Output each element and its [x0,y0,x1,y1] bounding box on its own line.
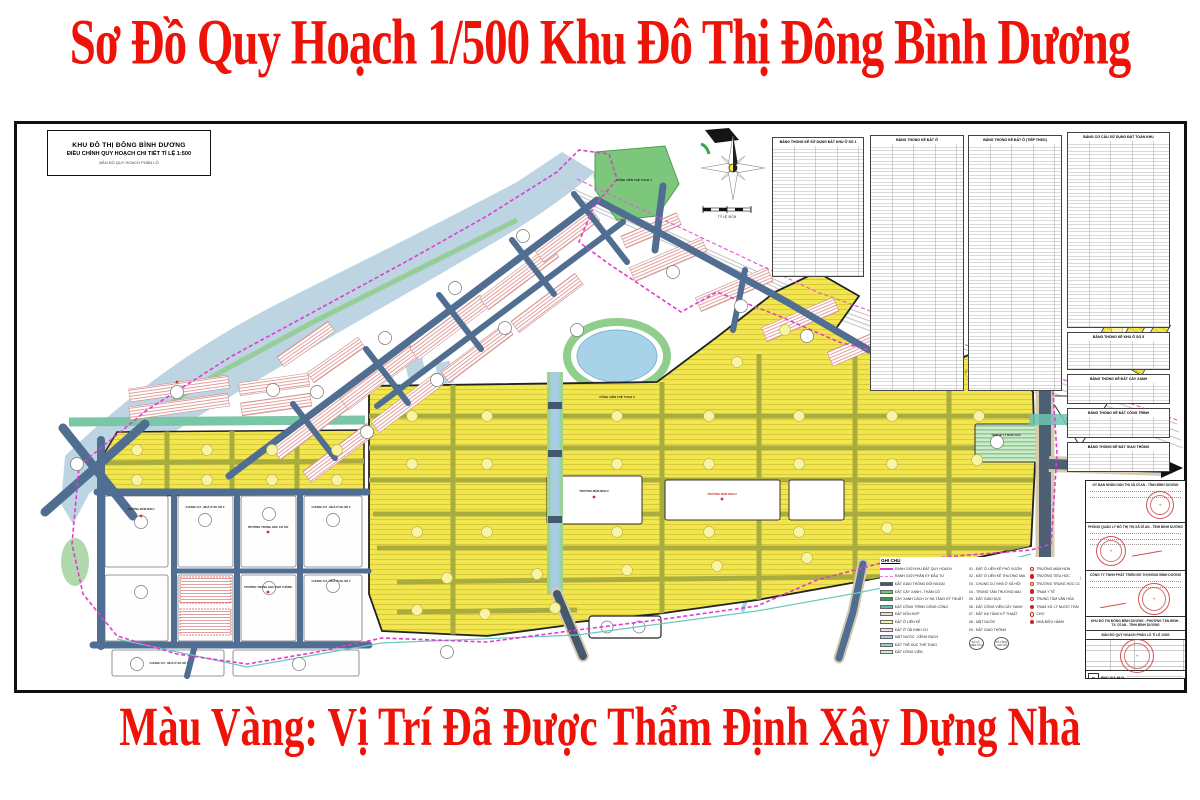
legend-note: 05 - ĐẤT GIÁO DỤC [969,595,1025,603]
red-stamp-icon: ✶ [1096,536,1126,566]
thpt-label: TRƯỜNG TRUNG HỌC PHỔ THÔNG [244,584,292,589]
apt3-label: CHUNG CƯ - NHÀ Ở XH SỐ 3 [312,504,351,509]
stat-table-rows [1068,383,1169,403]
legend-symbol: TRẠM XỬ LÝ NƯỚC THẢI [1030,603,1080,611]
approval-section-2: PHÒNG QUẢN LÝ ĐÔ THỊ THỊ XÃ DĨ AN - TỈNH… [1086,523,1185,571]
stat-table: BẢNG CƠ CẤU SỬ DỤNG ĐẤT TOÀN KHU [1067,132,1170,328]
stat-table-rows [871,144,963,390]
legend-item: ĐẤT Ở LIÊN KẾ [880,618,964,626]
legend-symbol-label: TRƯỜNG TRUNG HỌC CƠ SỞ [1036,582,1080,586]
stat-table-rows [773,146,863,276]
legend-symbol: TRƯỜNG TRUNG HỌC CƠ SỞ [1030,580,1080,588]
company-logo: P [1088,673,1099,680]
north-arrow-icon [701,128,765,200]
stat-table-rows [1068,141,1169,327]
red-marker-icon [1030,574,1034,578]
legend-note: 07 - ĐẤT HẠ TẦNG KỸ THUẬT [969,611,1025,619]
legend-note: 09 - ĐẤT GIAO THÔNG [969,626,1025,634]
red-stamp-icon: ✶ [1138,583,1170,615]
scale-bar: TỶ LỆ XÍCH [703,206,751,219]
footer-note: Màu Vàng: Vị Trí Đã Được Thẩm Định Xây D… [0,694,1200,759]
legend-item-label: ĐẤT CÔNG VIÊN [895,650,923,654]
legend-item: ĐẤT HỖN HỢP [880,611,964,619]
legend-item: RANH GIỚI KHU ĐẤT QUY HOẠCH [880,565,964,573]
legend-symbol: TRUNG TÂM VĂN HÓA [1030,595,1080,603]
title-block-line2: ĐIỀU CHỈNH QUY HOẠCH CHI TIẾT TỈ LỆ 1:50… [48,151,210,157]
legend-swatch [880,650,893,654]
stat-table: BẢNG THỐNG KÊ ĐẤT GIAO THÔNG [1067,442,1170,472]
approval-title-4: KHU ĐÔ THỊ ĐÔNG BÌNH DƯƠNG - PHƯỜNG TÂN … [1088,619,1183,627]
red-marker-icon [1030,620,1034,624]
legend-symbol: NHÀ ĐIỀU HÀNH [1030,618,1080,626]
legend-item-label: ĐẤT HỖN HỢP [895,612,920,616]
legend: GHI CHÚ RANH GIỚI KHU ĐẤT QUY HOẠCHRANH … [880,557,1080,683]
park2-label: CÔNG VIÊN THỂ THAO 2 [599,394,635,399]
title-block-line1: KHU ĐÔ THỊ ĐÔNG BÌNH DƯƠNG [48,142,210,149]
stat-table: BẢNG THỐNG KÊ ĐẤT Ở (TIẾP THEO) [968,135,1062,391]
legend-circle-symbol: SỐ TẦNG - MẬT ĐỘ [994,637,1009,650]
red-marker-icon [1030,605,1034,609]
legend-symbol-label: CHỢ [1036,612,1044,616]
legend-title: GHI CHÚ [881,558,1080,563]
legend-item: ĐẤT THỂ DỤC THỂ THAO [880,641,964,649]
legend-swatch [880,635,893,639]
legend-item-label: ĐẤT Ở TÁI ĐỊNH CƯ [895,628,928,632]
legend-item: ĐẤT Ở TÁI ĐỊNH CƯ [880,626,964,634]
map-frame: CÔNG VIÊN THỂ THAO 1 CÔNG VIÊN THỂ THAO … [14,121,1187,693]
legend-swatch [880,576,893,577]
legend-note: 04 - TRUNG TÂM THƯƠNG MẠI [969,588,1025,596]
legend-item-label: RANH GIỚI PHÂN KỲ ĐẦU TƯ [895,574,944,578]
apt4-label: CHUNG CƯ - NHÀ Ở XH SỐ 4 [312,578,351,583]
legend-symbol-label: NHÀ ĐIỀU HÀNH [1036,620,1064,624]
legend-symbol: TRƯỜNG MẦM NON [1030,565,1080,573]
legend-symbol-label: TRUNG TÂM VĂN HÓA [1036,597,1073,601]
stat-table-rows [969,144,1061,390]
drawing-title-block: KHU ĐÔ THỊ ĐÔNG BÌNH DƯƠNG ĐIỀU CHỈNH QU… [47,130,211,176]
legend-swatch [880,597,893,601]
legend-item-label: MẶT NƯỚC - KÊNH RẠCH [895,635,938,639]
approval-section-4: KHU ĐÔ THỊ ĐÔNG BÌNH DƯƠNG - PHƯỜNG TÂN … [1086,617,1185,631]
legend-swatch [880,568,893,570]
legend-item: MẶT NƯỚC - KÊNH RẠCH [880,633,964,641]
stat-table: BẢNG THỐNG KÊ ĐẤT CÔNG TRÌNH [1067,408,1170,438]
legend-item-label: ĐẤT CÂY XANH - THẢM CỎ [895,590,940,594]
legend-symbol-label: TRẠM Y TẾ [1036,590,1054,594]
legend-symbol-label: TRƯỜNG MẦM NON [1036,567,1070,571]
legend-swatch-column: RANH GIỚI KHU ĐẤT QUY HOẠCHRANH GIỚI PHÂ… [880,565,964,656]
legend-note-symbols: SỐ LÔ - DIỆN TÍCHSỐ TẦNG - MẬT ĐỘ [969,637,1025,650]
legend-item: ĐẤT GIAO THÔNG ĐỐI NGOẠI [880,580,964,588]
legend-symbol-label: TRẠM XỬ LÝ NƯỚC THẢI [1036,605,1078,609]
apt1-label: CHUNG CƯ - NHÀ Ở XH SỐ 1 [150,660,189,665]
legend-swatch [880,612,893,616]
legend-note: 08 - MẶT NƯỚC [969,618,1025,626]
legend-note: 02 - ĐẤT Ở LIÊN KẾ THƯƠNG MẠI [969,573,1025,581]
approval-section-3: CÔNG TY TNHH PHÁT TRIỂN ĐÔ THỊ ĐÔNG BÌNH… [1086,571,1185,617]
page-title: Sơ Đồ Quy Hoạch 1/500 Khu Đô Thị Đông Bì… [0,6,1200,81]
approval-title-1: ỦY BAN NHÂN DÂN THỊ XÃ DĨ AN - TỈNH BÌNH… [1088,483,1183,487]
apt2-label: CHUNG CƯ - NHÀ Ở XH SỐ 2 [186,504,225,509]
stat-table-rows [1068,341,1169,369]
legend-note: 03 - CHUNG CƯ NHÀ Ở XÃ HỘI [969,580,1025,588]
red-marker-icon [1030,589,1034,593]
signature-mark [1100,603,1126,608]
legend-item: ĐẤT CÂY XANH - THẢM CỎ [880,588,964,596]
legend-symbol-label: TRƯỜNG TIỂU HỌC [1036,574,1070,578]
legend-item: ĐẤT CÔNG TRÌNH CÔNG CỘNG [880,603,964,611]
approval-drawing-title-text: BẢN ĐỒ QUY HOẠCH PHÂN LÔ TỈ LỆ 1/500 [1088,633,1183,637]
company-name: PHÚ GIA HUY [1101,676,1124,679]
signature-mark [1132,550,1162,556]
mn3-label: TRƯỜNG MẦM NON 3 [707,491,737,496]
legend-swatch [880,582,893,586]
red-stamp-icon: ✶ [1146,491,1174,519]
legend-item-label: ĐẤT Ở LIÊN KẾ [895,620,920,624]
legend-swatch [880,590,893,594]
legend-item: ĐẤT CÔNG VIÊN [880,649,964,657]
stat-table: BẢNG THỐNG KÊ KHU Ở SỐ 5 [1067,332,1170,370]
legend-symbol: TRƯỜNG TIỂU HỌC [1030,573,1080,581]
legend-swatch [880,643,893,647]
wwtp-label: TRẠM XỬ LÝ NƯỚC THẢI [991,434,1021,437]
stat-table: BẢNG THỐNG KÊ SỬ DỤNG ĐẤT KHU Ở SỐ 1 [772,137,864,277]
legend-swatch [880,620,893,624]
legend-item: CÂY XANH CÁCH LY HẠ TẦNG KỸ THUẬT [880,595,964,603]
legend-symbol-column: TRƯỜNG MẦM NONTRƯỜNG TIỂU HỌCTRƯỜNG TRUN… [1030,565,1080,656]
approval-title-3: CÔNG TY TNHH PHÁT TRIỂN ĐÔ THỊ ĐÔNG BÌNH… [1088,573,1183,577]
mn2-label: TRƯỜNG MẦM NON 2 [579,488,609,493]
legend-item-label: RANH GIỚI KHU ĐẤT QUY HOẠCH [895,567,952,571]
legend-swatch [880,605,893,609]
title-block-line3: BẢN ĐỒ QUY HOẠCH PHÂN LÔ [48,160,210,165]
legend-note: 06 - ĐẤT CÔNG VIÊN CÂY XANH [969,603,1025,611]
legend-symbol: TRẠM Y TẾ [1030,588,1080,596]
legend-swatch [880,628,893,632]
red-marker-icon [1030,612,1034,616]
approval-block: ỦY BAN NHÂN DÂN THỊ XÃ DĨ AN - TỈNH BÌNH… [1085,480,1186,679]
stat-table: BẢNG THỐNG KÊ ĐẤT CÂY XANH [1067,374,1170,404]
legend-item-label: ĐẤT CÔNG TRÌNH CÔNG CỘNG [895,605,948,609]
red-marker-icon [1030,597,1034,601]
legend-circle-symbol: SỐ LÔ - DIỆN TÍCH [969,637,984,650]
company-address-lines [1126,674,1183,679]
red-marker-icon [1030,567,1034,571]
page: { "header": { "title": "Sơ Đồ Quy Hoạch … [0,0,1200,800]
legend-item-label: ĐẤT THỂ DỤC THỂ THAO [895,643,937,647]
scale-label: TỶ LỆ XÍCH [718,214,737,219]
legend-symbol: CHỢ [1030,611,1080,619]
legend-item: RANH GIỚI PHÂN KỲ ĐẦU TƯ [880,573,964,581]
thcs-label: TRƯỜNG TRUNG HỌC CƠ SỞ [248,524,289,529]
park1-label: CÔNG VIÊN THỂ THAO 1 [616,177,652,182]
red-marker-icon [1030,582,1034,586]
legend-item-label: CÂY XANH CÁCH LY HẠ TẦNG KỸ THUẬT [895,597,963,601]
red-stamp-icon: ✶ [1120,639,1154,673]
stat-table: BẢNG THỐNG KÊ ĐẤT Ở [870,135,964,391]
legend-note: 01 - ĐẤT Ở LIÊN KẾ PHỐ VƯỜN [969,565,1025,573]
legend-notes-column: 01 - ĐẤT Ở LIÊN KẾ PHỐ VƯỜN02 - ĐẤT Ở LI… [969,565,1025,656]
stat-table-rows [1068,417,1169,437]
approval-section-1: ỦY BAN NHÂN DÂN THỊ XÃ DĨ AN - TỈNH BÌNH… [1086,481,1185,523]
stat-table-rows [1068,451,1169,471]
approval-title-2: PHÒNG QUẢN LÝ ĐÔ THỊ THỊ XÃ DĨ AN - TỈNH… [1088,525,1183,529]
legend-item-label: ĐẤT GIAO THÔNG ĐỐI NGOẠI [895,582,945,586]
